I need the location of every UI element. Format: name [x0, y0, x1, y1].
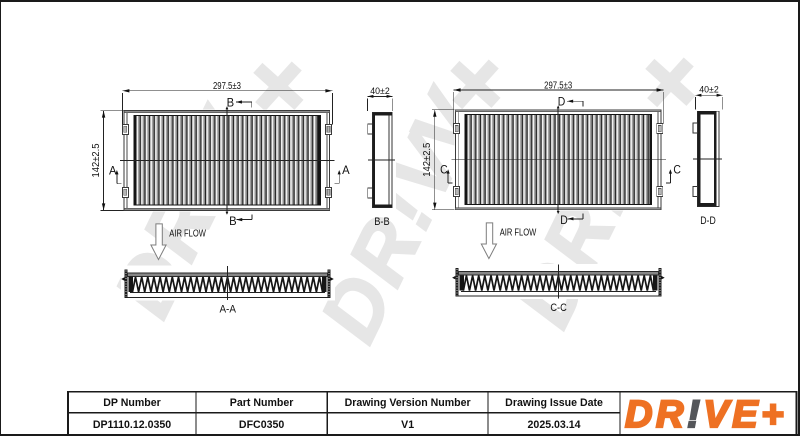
- svg-text:A: A: [109, 166, 117, 178]
- svg-text:142±2.5: 142±2.5: [91, 143, 102, 177]
- svg-text:Drawing Version Number: Drawing Version Number: [345, 397, 471, 409]
- svg-text:B-B: B-B: [374, 216, 390, 228]
- svg-text:D: D: [560, 215, 568, 227]
- svg-text:B: B: [229, 216, 237, 228]
- svg-text:297.5±3: 297.5±3: [213, 81, 241, 92]
- svg-text:V1: V1: [401, 419, 414, 431]
- svg-text:C: C: [440, 165, 448, 177]
- svg-text:142±2.5: 142±2.5: [422, 142, 433, 176]
- svg-text:A: A: [342, 165, 350, 177]
- svg-text:DP Number: DP Number: [103, 397, 161, 409]
- svg-text:DP1110.12.0350: DP1110.12.0350: [93, 419, 171, 431]
- svg-text:40±2: 40±2: [370, 86, 390, 97]
- svg-text:DFC0350: DFC0350: [239, 419, 284, 431]
- svg-text:297.5±3: 297.5±3: [544, 80, 572, 91]
- svg-text:C: C: [673, 164, 681, 176]
- svg-text:Drawing Issue Date: Drawing Issue Date: [505, 397, 603, 409]
- svg-text:C-C: C-C: [550, 302, 567, 314]
- svg-text:Part Number: Part Number: [230, 397, 294, 409]
- svg-text:D: D: [558, 97, 566, 109]
- svg-text:D-D: D-D: [700, 215, 716, 227]
- svg-text:40±2: 40±2: [699, 85, 719, 96]
- svg-text:A-A: A-A: [219, 303, 236, 315]
- svg-text:DR!VE+: DR!VE+: [625, 394, 787, 436]
- svg-text:B: B: [227, 97, 235, 109]
- svg-text:AIR FLOW: AIR FLOW: [500, 227, 537, 238]
- svg-text:2025.03.14: 2025.03.14: [528, 419, 581, 431]
- svg-text:AIR FLOW: AIR FLOW: [169, 228, 206, 239]
